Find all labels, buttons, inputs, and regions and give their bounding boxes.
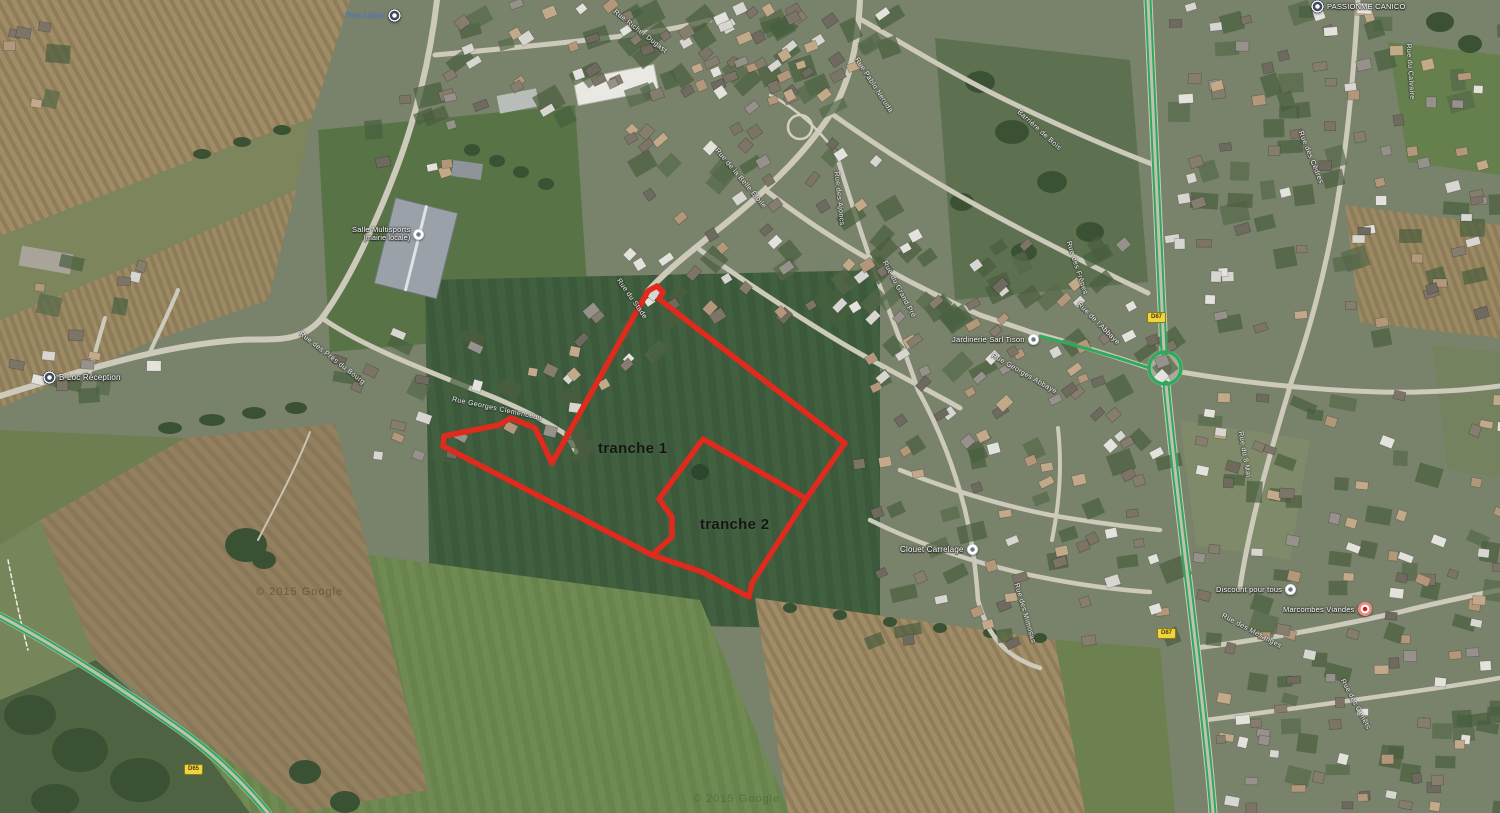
place-pin-icon[interactable] (1028, 334, 1039, 345)
place-pin-icon[interactable] (1311, 0, 1324, 13)
poi-passion-canin[interactable]: PASSIONME CANICO (1311, 0, 1406, 13)
poi-clouet-label: Clouet Carrelage (900, 545, 964, 554)
poi-salle-multisports[interactable]: Salle Multisports (mairie locale) (352, 226, 424, 243)
poi-jardinerie[interactable]: Jardinerie Sarl Tison (952, 334, 1039, 345)
poi-marcombes[interactable]: Marcombes Viandes (1283, 602, 1372, 616)
poi-salle-label: Salle Multisports (352, 226, 410, 235)
route-shield: D87 (1157, 628, 1176, 639)
poi-passion-label: PASSIONME CANICO (1327, 2, 1406, 11)
shop-pin-icon[interactable] (1358, 602, 1372, 616)
poi-discount[interactable]: Discount pour tous (1216, 584, 1296, 595)
route-shield: D87 (1147, 312, 1166, 323)
route-shield: D65 (184, 764, 203, 775)
poi-top-left-label: Piou Liaud (345, 11, 385, 20)
map-artwork (0, 0, 1500, 813)
poi-marcombes-label: Marcombes Viandes (1283, 605, 1355, 614)
poi-jardinerie-label: Jardinerie Sarl Tison (952, 335, 1025, 344)
poi-b-loc-label: B Loc Réception (59, 373, 121, 382)
poi-b-loc-reception[interactable]: B Loc Réception (43, 371, 121, 384)
place-pin-icon[interactable] (388, 9, 401, 22)
poi-discount-label: Discount pour tous (1216, 585, 1282, 594)
poi-salle-sublabel: (mairie locale) (363, 235, 410, 243)
place-pin-icon[interactable] (413, 229, 424, 240)
satellite-map-canvas[interactable]: tranche 1 tranche 2 Piou Liaud Salle Mul… (0, 0, 1500, 813)
place-pin-icon[interactable] (43, 371, 56, 384)
poi-top-left[interactable]: Piou Liaud (345, 9, 401, 22)
place-pin-icon[interactable] (967, 544, 978, 555)
place-pin-icon[interactable] (1285, 584, 1296, 595)
poi-clouet-carrelage[interactable]: Clouet Carrelage (900, 544, 978, 555)
